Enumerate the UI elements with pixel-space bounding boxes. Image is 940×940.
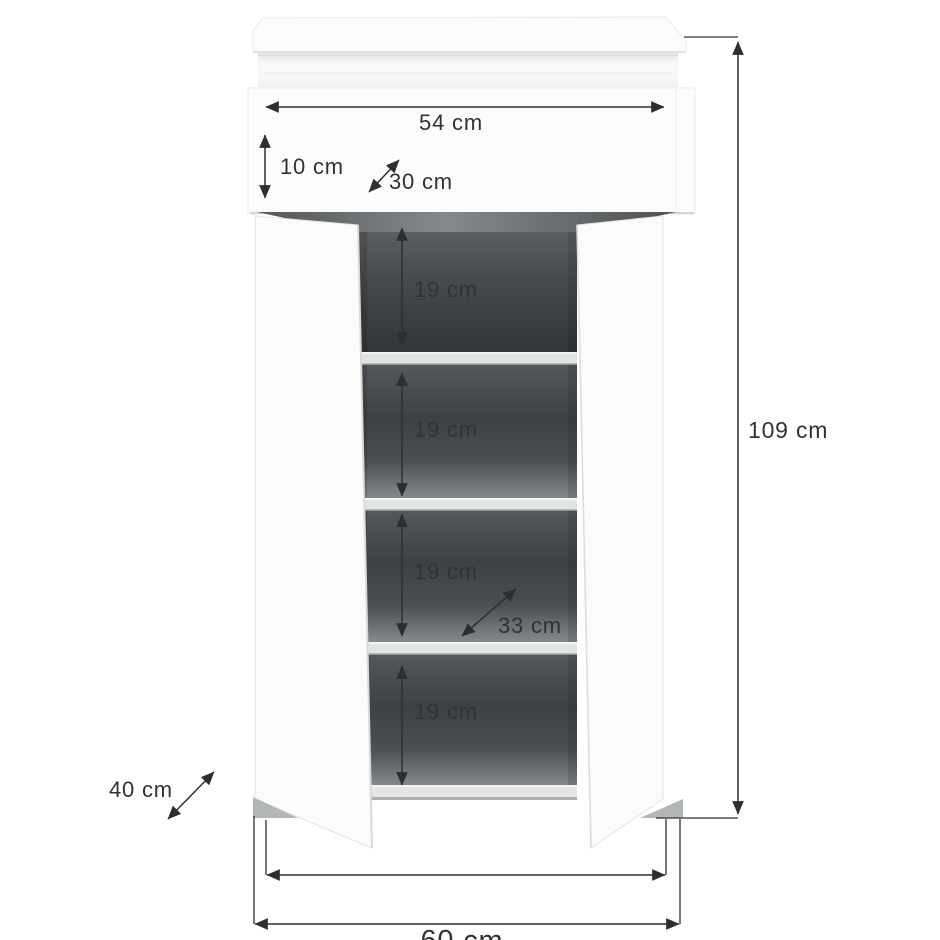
top-slab-face: [253, 17, 686, 52]
dim-top-width-label: 54 cm: [419, 110, 483, 135]
dim-drawer-height-label: 10 cm: [280, 154, 344, 179]
dim-compartment-1-label: 19 cm: [414, 277, 478, 302]
shelf-3: [358, 642, 577, 654]
dim-side-depth-label: 40 cm: [109, 777, 173, 802]
top-recessed-band: [258, 53, 678, 88]
shelf-1: [358, 352, 577, 364]
left-door-panel: [255, 216, 372, 848]
dim-top-depth-label: 30 cm: [389, 169, 453, 194]
right-door-panel: [577, 216, 663, 848]
dim-compartment-4-label: 19 cm: [414, 699, 478, 724]
cabinet-top-slab: [253, 17, 686, 52]
cabinet-dimensions-svg: 54 cm 10 cm 30 cm 19 cm 19 cm 19 cm 33 c…: [0, 0, 940, 940]
dim-compartment-2-label: 19 cm: [414, 417, 478, 442]
recess-face: [258, 53, 678, 88]
dim-interior-depth-label: 33 cm: [498, 613, 562, 638]
dim-total-height-label: 109 cm: [748, 417, 828, 443]
left-door: [253, 216, 372, 848]
dim-bottom-width-label: 60 cm: [421, 925, 504, 940]
interior-floor: [358, 785, 577, 800]
furniture-dimension-diagram: 54 cm 10 cm 30 cm 19 cm 19 cm 19 cm 33 c…: [0, 0, 940, 940]
dim-compartment-3-label: 19 cm: [414, 559, 478, 584]
shelf-2: [358, 498, 577, 510]
